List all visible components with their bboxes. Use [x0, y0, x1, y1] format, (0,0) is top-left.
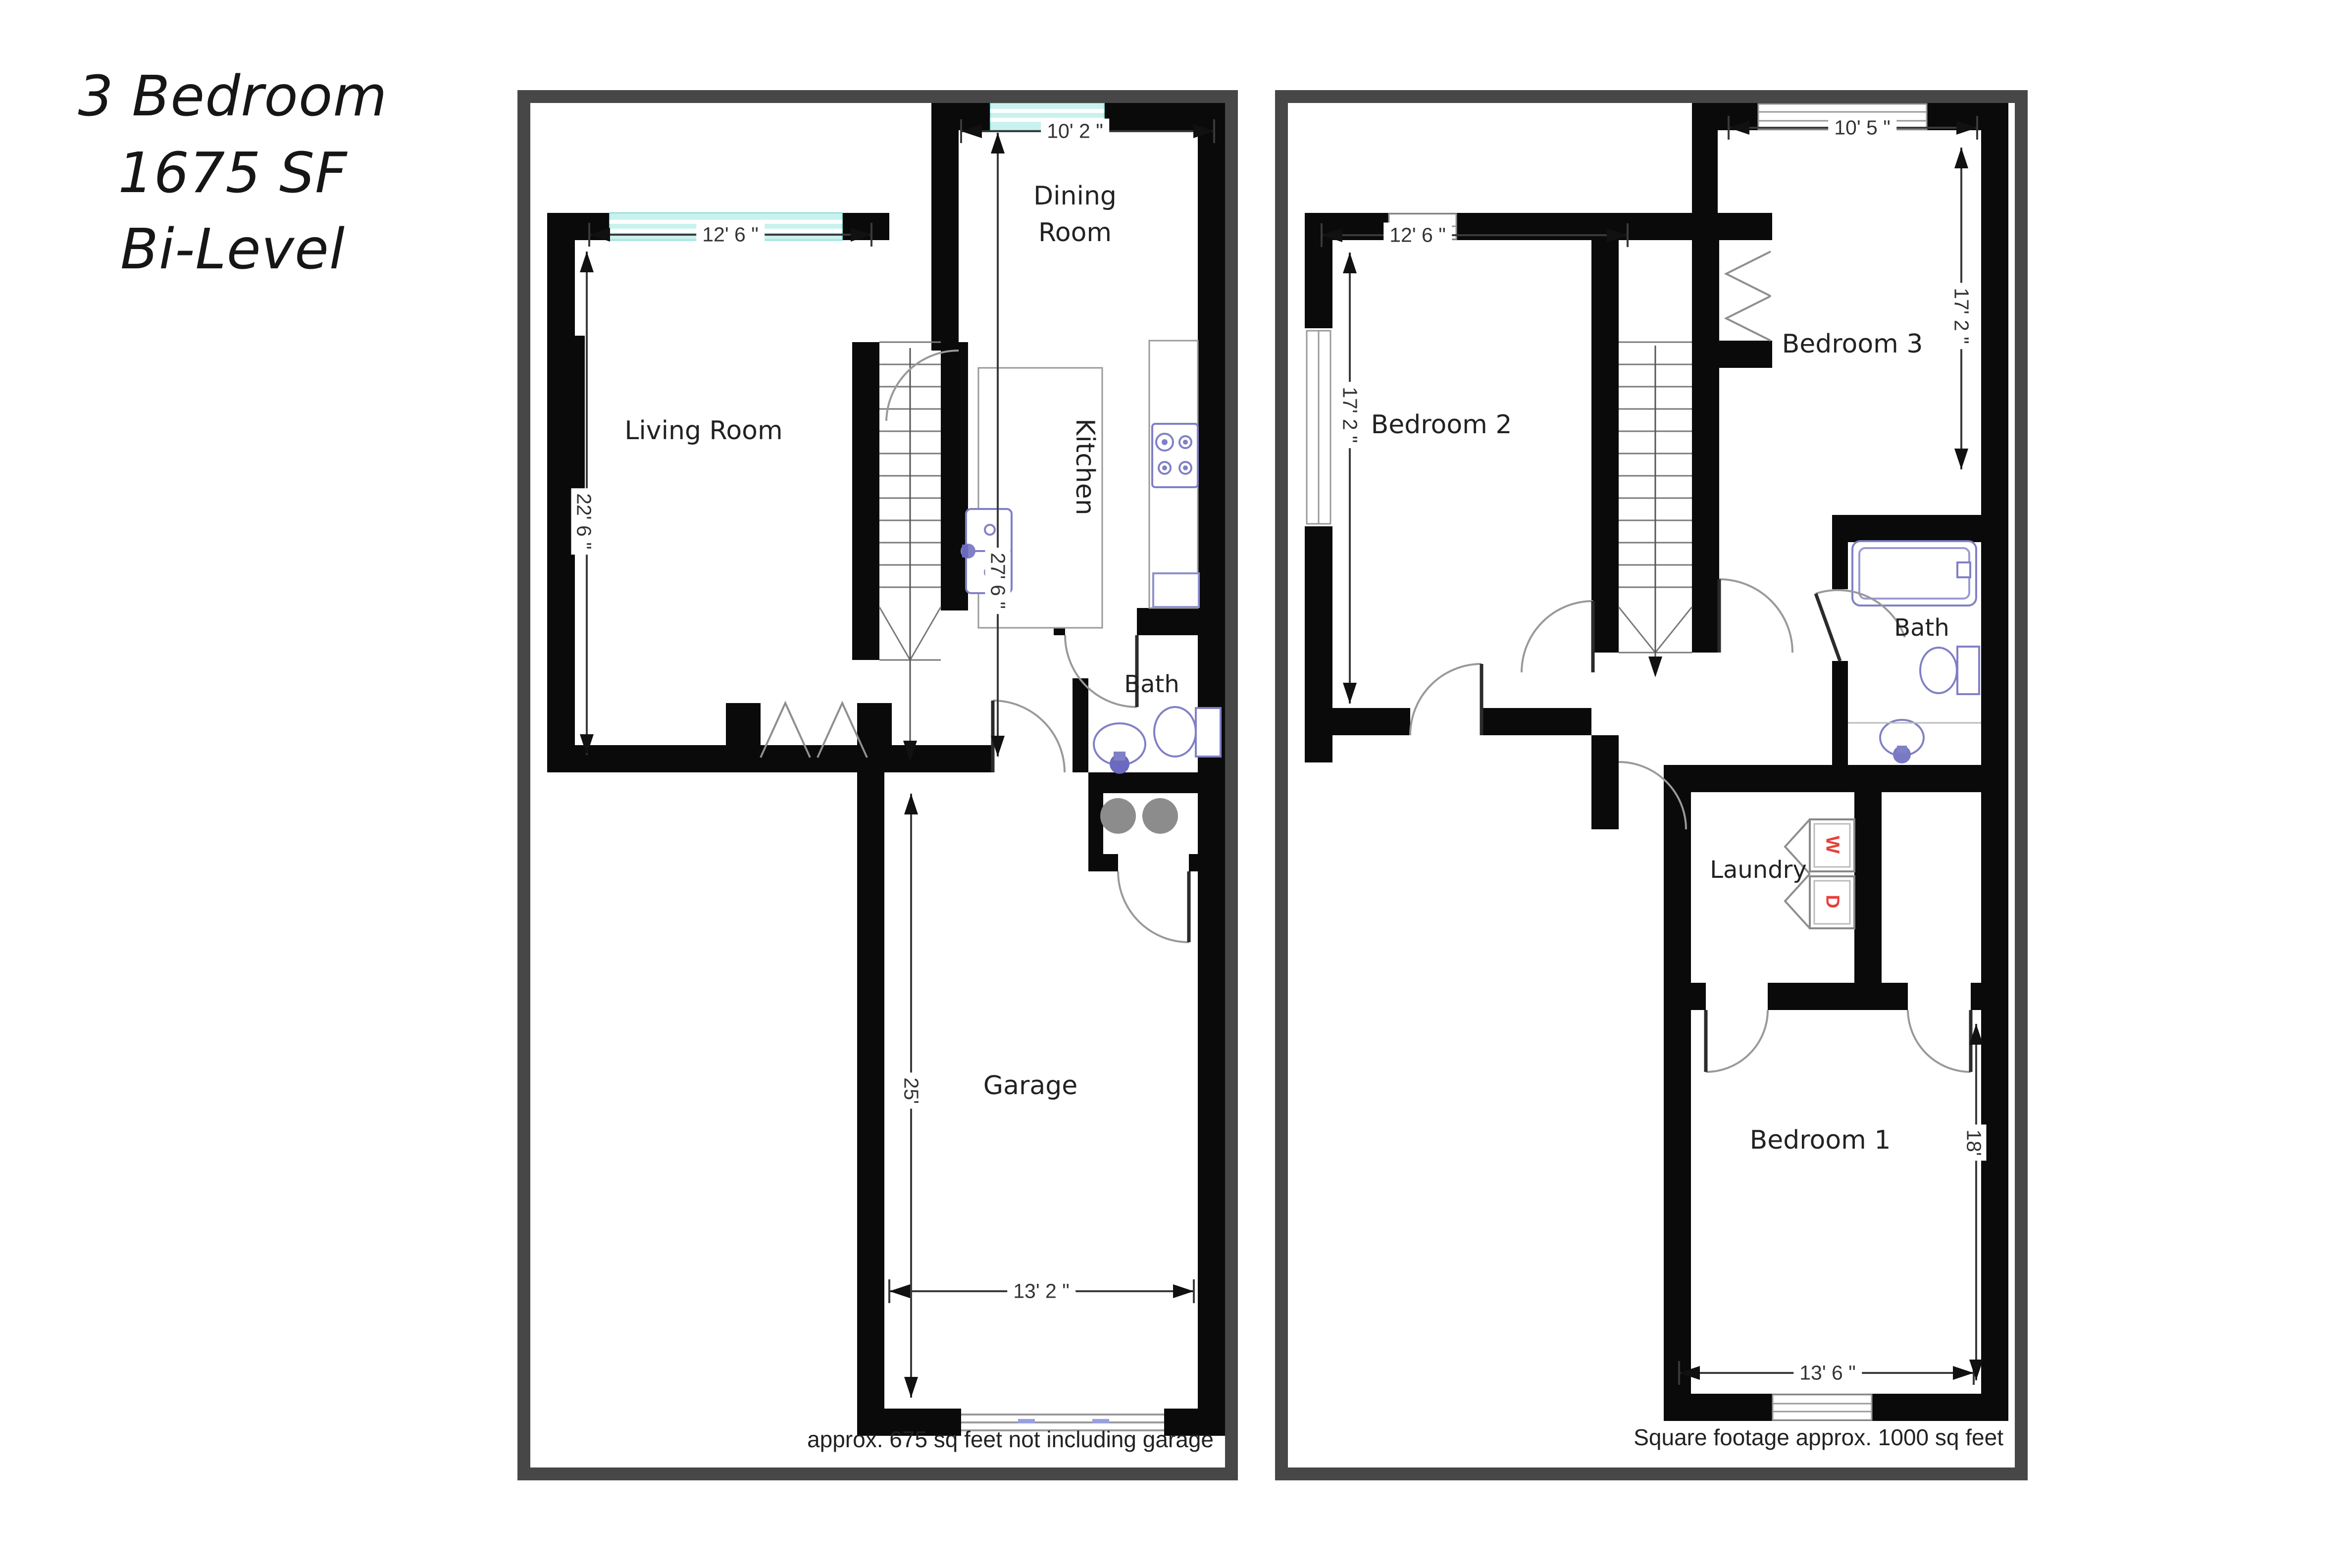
dim-bedroom3-depth: 17' 2 " — [1949, 283, 1974, 349]
plan-title-line1: 3 Bedroom — [54, 58, 411, 135]
door-arc-bedroom1-right — [1908, 1010, 1971, 1072]
bath-sink — [1094, 723, 1145, 774]
washer-letter: W — [1822, 836, 1843, 854]
dryer-letter: D — [1822, 895, 1843, 908]
dimension-lines — [1322, 116, 1977, 1385]
toilet — [1920, 647, 1979, 694]
staircase — [1619, 342, 1692, 662]
door-arc-hall — [1522, 601, 1593, 672]
dim-dining-width: 10' 2 " — [1041, 119, 1109, 144]
floor-plan-panel-bedroom-level: Bedroom 2 12' 6 " 17' 2 " Bedroom 3 10' … — [1275, 90, 2028, 1480]
room-label-garage: Garage — [983, 1071, 1077, 1101]
room-label-bedroom3: Bedroom 3 — [1782, 329, 1923, 359]
plan-title: 3 Bedroom 1675 SF Bi-Level — [54, 58, 411, 288]
dim-bedroom1-depth: 18' — [1961, 1124, 1987, 1161]
right-plan-footnote: Square footage approx. 1000 sq feet — [1634, 1424, 2003, 1451]
door-arc-bedroom1-left — [1706, 1010, 1768, 1072]
dim-bedroom1-width: 13' 6 " — [1793, 1361, 1862, 1386]
utility-posts — [1100, 798, 1178, 834]
room-label-dining-line1: Dining — [1033, 178, 1117, 215]
dim-living-depth: 22' 6 " — [571, 488, 597, 555]
room-label-bath: Bath — [1894, 614, 1949, 642]
door-arc-bedroom3 — [1719, 579, 1792, 653]
door-arc-bedroom2 — [1410, 664, 1482, 735]
dim-garage-width: 13' 2 " — [1007, 1279, 1075, 1304]
plan-title-line2: 1675 SF — [54, 135, 411, 212]
left-plan-footnote: approx. 675 sq feet not including garage — [807, 1426, 1214, 1453]
dim-living-width: 12' 6 " — [696, 222, 765, 248]
dishwasher — [1153, 573, 1199, 607]
room-label-kitchen: Kitchen — [1070, 418, 1100, 515]
bathtub — [1852, 541, 1976, 606]
floor-plan-panel-main-level: Dining Room 10' 2 " Living Room 12' 6 " … — [517, 90, 1238, 1480]
room-label-laundry: Laundry — [1710, 856, 1807, 884]
room-label-bath: Bath — [1124, 670, 1179, 698]
room-label-dining-line2: Room — [1033, 215, 1117, 252]
room-label-dining: Dining Room — [1033, 178, 1117, 252]
dim-bedroom2-width: 12' 6 " — [1383, 223, 1452, 248]
window-bedroom2-side — [1307, 331, 1330, 524]
floor-plan-left-drawing — [530, 103, 1225, 1467]
door-arc-vestibule — [1118, 871, 1189, 942]
toilet — [1154, 707, 1221, 757]
dim-garage-depth: 25' — [899, 1072, 924, 1109]
room-label-living: Living Room — [624, 416, 782, 446]
room-label-bedroom2: Bedroom 2 — [1371, 410, 1512, 440]
floor-plan-right-drawing — [1288, 103, 2015, 1467]
dim-bedroom3-width: 10' 5 " — [1828, 115, 1896, 141]
stove — [1152, 424, 1198, 487]
room-label-bedroom1: Bedroom 1 — [1750, 1125, 1891, 1155]
bath-sink — [1880, 720, 1924, 763]
stair-direction-arrow — [1648, 657, 1662, 677]
dim-kitchen-depth: 27' 6 " — [985, 548, 1011, 614]
dim-bedroom2-depth: 17' 2 " — [1337, 382, 1363, 448]
dimension-arrows — [1322, 121, 1983, 1380]
plan-title-line3: Bi-Level — [54, 211, 411, 288]
window-bedroom1 — [1773, 1395, 1872, 1420]
